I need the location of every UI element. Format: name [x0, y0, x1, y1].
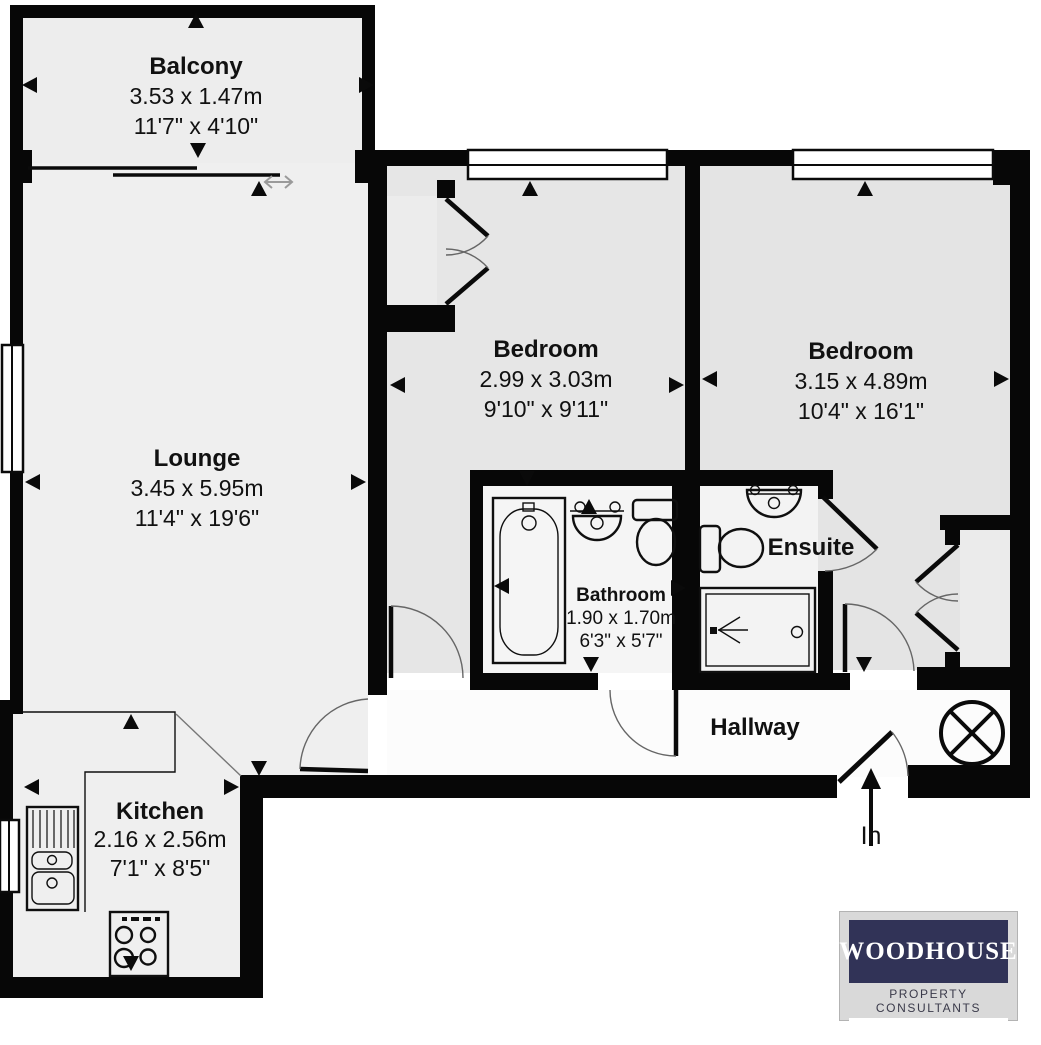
- bedroom2-label: Bedroom: [808, 338, 913, 365]
- lounge-dim-imperial: 11'4" x 19'6": [135, 505, 259, 531]
- bedroom1-closet-floor: [387, 196, 437, 307]
- balcony-label: Balcony: [149, 53, 243, 80]
- kitchen-dim-metric: 2.16 x 2.56m: [94, 826, 227, 852]
- bedroom1-window: [468, 150, 667, 179]
- bathroom-dim-imperial: 6'3" x 5'7": [579, 631, 662, 652]
- agency-logo-navy-panel: WOODHOUSE: [849, 920, 1008, 983]
- lounge-label: Lounge: [154, 445, 241, 472]
- bedroom2-dim-metric: 3.15 x 4.89m: [795, 368, 928, 394]
- entrance-label: In: [861, 822, 882, 850]
- agency-tagline: PROPERTY CONSULTANTS: [840, 987, 1017, 1015]
- bedroom1-dim-imperial: 9'10" x 9'11": [484, 396, 608, 422]
- agency-logo-strip: [849, 1018, 1008, 1030]
- bathroom-dim-metric: 1.90 x 1.70m: [566, 608, 676, 629]
- kitchen-label: Kitchen: [116, 798, 204, 825]
- bedroom1-dim-metric: 2.99 x 3.03m: [480, 366, 613, 392]
- bedroom2-dim-imperial: 10'4" x 16'1": [798, 398, 924, 424]
- bedroom1-label: Bedroom: [493, 336, 598, 363]
- agency-brand-name: WOODHOUSE: [839, 938, 1017, 966]
- balcony-dim-imperial: 11'7" x 4'10": [134, 113, 258, 139]
- hallway-floor: [387, 690, 1012, 777]
- bedroom2-window: [793, 150, 993, 179]
- lounge-window: [2, 345, 23, 472]
- ensuite-label: Ensuite: [768, 534, 855, 561]
- agency-logo: WOODHOUSE PROPERTY CONSULTANTS: [839, 911, 1018, 1021]
- lounge-dim-metric: 3.45 x 5.95m: [131, 475, 264, 501]
- bathroom-label: Bathroom: [576, 585, 666, 606]
- kitchen-dim-imperial: 7'1" x 8'5": [110, 855, 211, 881]
- floorplan-page: Balcony 3.53 x 1.47m 11'7" x 4'10" Loung…: [0, 0, 1041, 1045]
- balcony-dim-metric: 3.53 x 1.47m: [130, 83, 263, 109]
- hallway-label: Hallway: [710, 714, 800, 741]
- ensuite-floor: [700, 486, 818, 673]
- kitchen-window: [0, 820, 19, 892]
- floorplan-drawing: Balcony 3.53 x 1.47m 11'7" x 4'10" Loung…: [0, 0, 1041, 1045]
- bedroom2-closet-floor: [960, 530, 1012, 667]
